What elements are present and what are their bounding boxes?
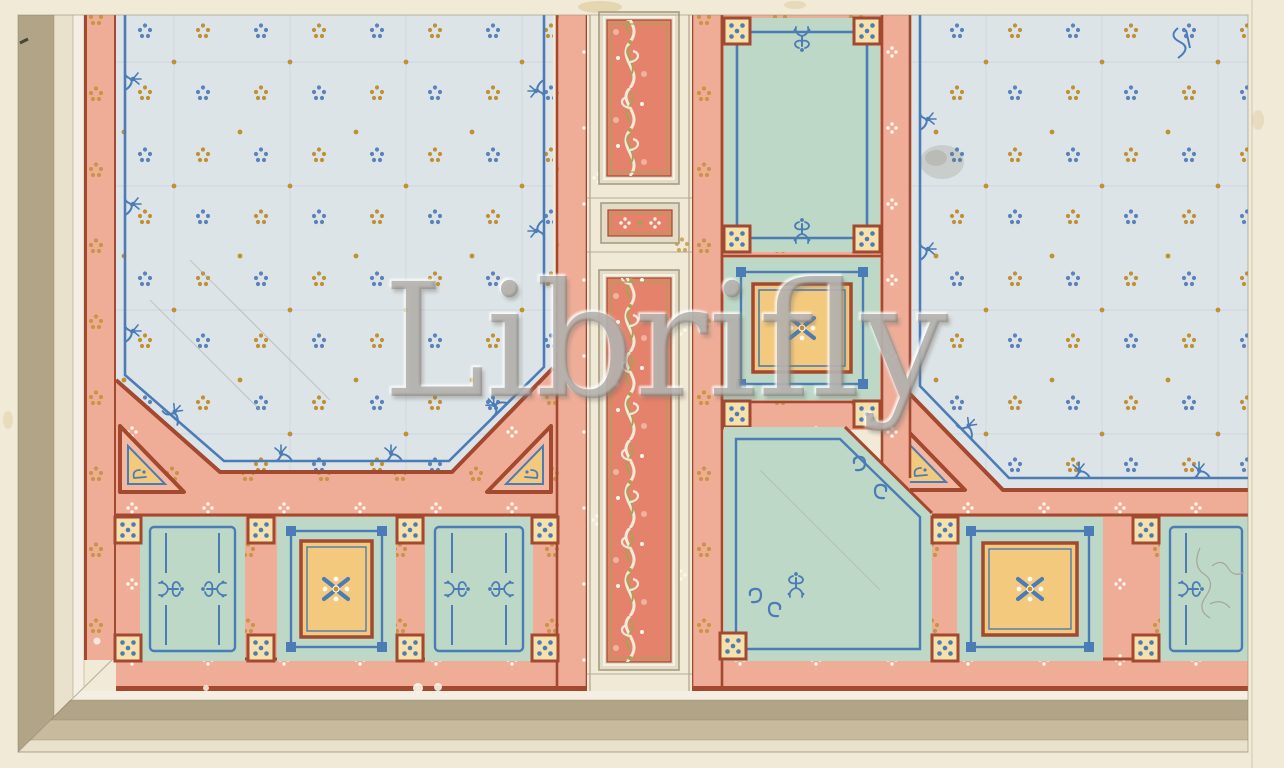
panel-column — [720, 15, 932, 661]
scroll-panel-long — [599, 270, 679, 670]
ceiling-field-left — [116, 15, 553, 472]
border-bands-bottom — [18, 686, 1248, 752]
bottom-panel-row-right — [932, 515, 1248, 661]
center-pilaster-strip — [557, 12, 722, 691]
side-panel-sketch — [1160, 517, 1248, 661]
bottom-panel-row-left — [115, 515, 558, 661]
center-square-panel-1 — [277, 517, 396, 661]
artwork-canvas — [0, 0, 1284, 768]
side-panel-2 — [425, 517, 533, 661]
scroll-panel-small — [601, 203, 679, 243]
side-panel-1 — [140, 517, 245, 661]
scroll-panel-top — [599, 12, 679, 184]
salmon-fillet-left — [87, 15, 114, 660]
column-panel-middle — [724, 258, 880, 400]
scanned-ceiling-design-artwork: Librifly — [0, 0, 1284, 768]
center-square-panel-2 — [957, 517, 1103, 661]
ceiling-field-right — [908, 15, 1248, 490]
column-panel-top — [724, 18, 880, 252]
border-bands-left — [18, 15, 117, 752]
